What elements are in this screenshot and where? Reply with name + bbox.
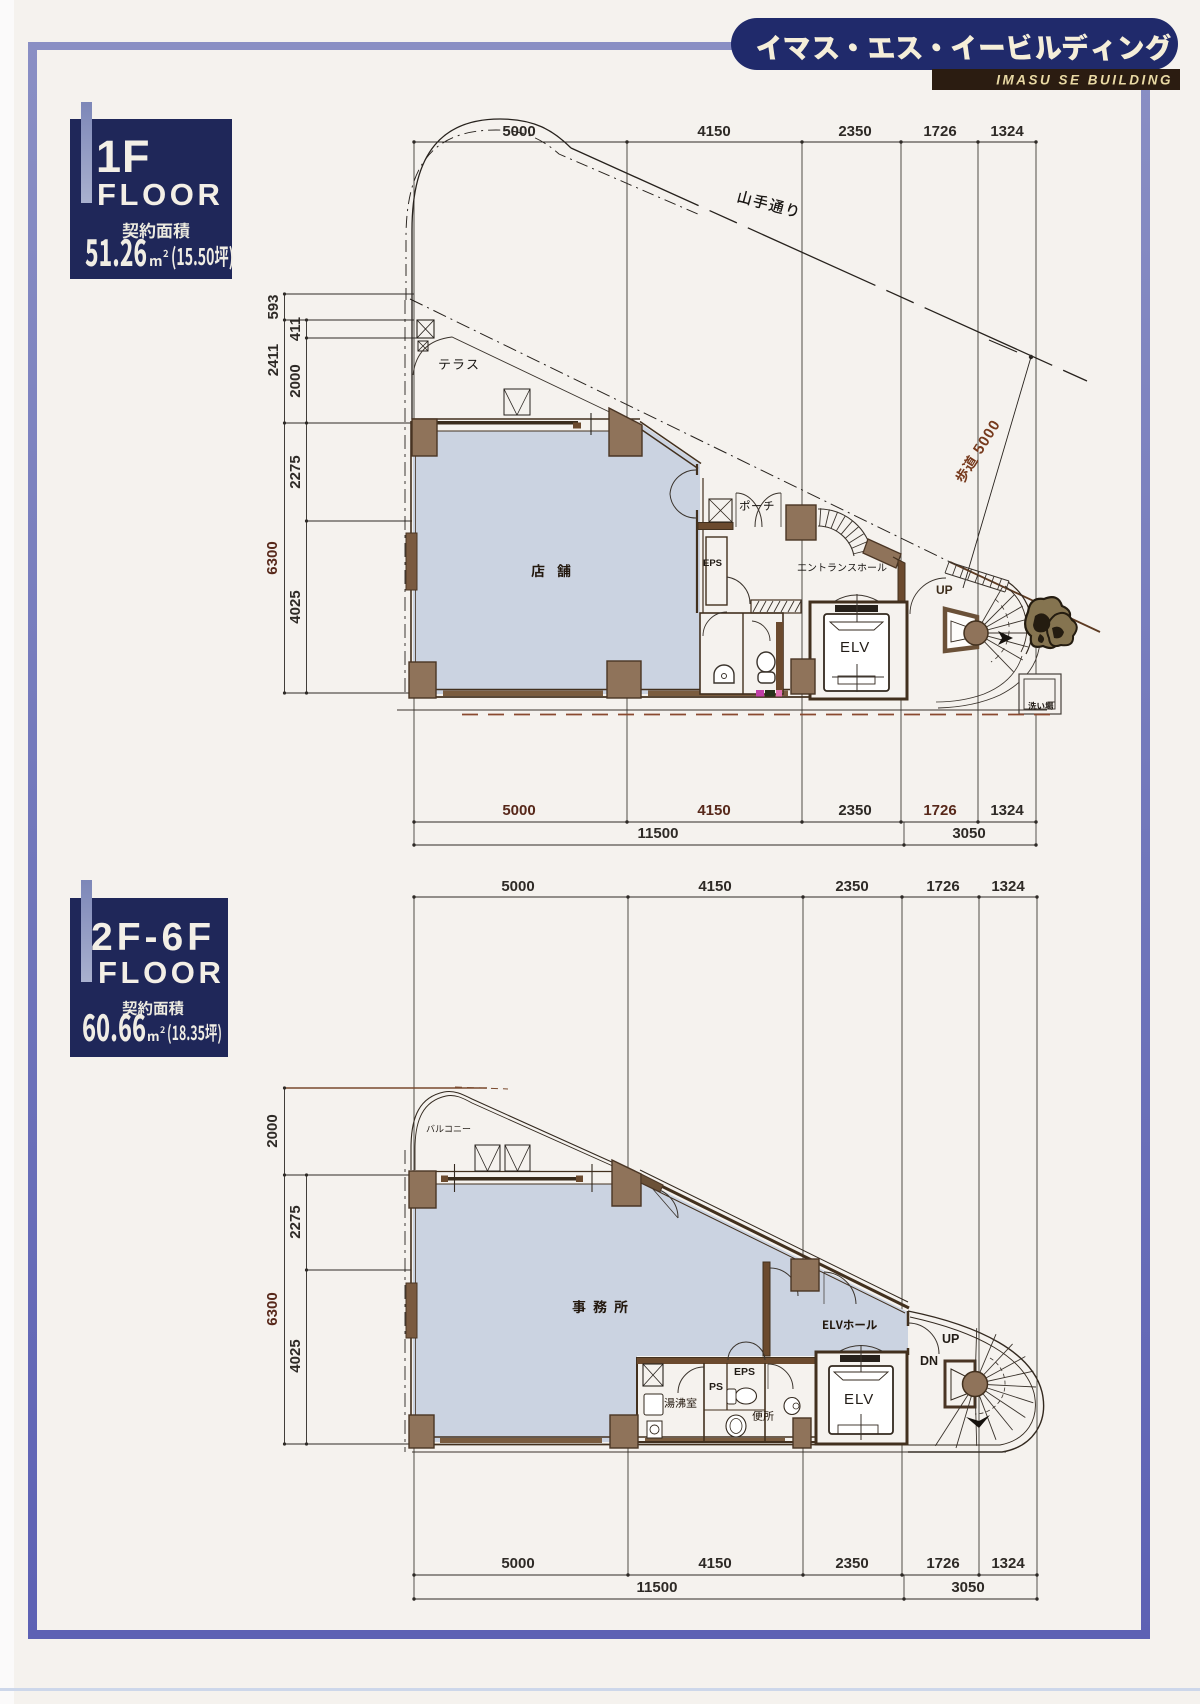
svg-text:1726: 1726	[923, 802, 956, 819]
svg-text:6300: 6300	[264, 1292, 281, 1325]
svg-text:5000: 5000	[501, 878, 534, 895]
svg-text:2350: 2350	[835, 878, 868, 895]
svg-text:4150: 4150	[697, 123, 730, 140]
svg-text:2000: 2000	[287, 364, 304, 397]
svg-text:IMASU SE BUILDING: IMASU SE BUILDING	[996, 73, 1173, 88]
svg-text:1324: 1324	[991, 878, 1025, 895]
svg-text:11500: 11500	[637, 1579, 678, 1596]
svg-text:4150: 4150	[698, 1555, 731, 1572]
svg-text:DN: DN	[920, 1354, 938, 1368]
svg-text:2275: 2275	[287, 455, 304, 488]
svg-text:UP: UP	[942, 1332, 959, 1346]
svg-text:5000: 5000	[502, 123, 535, 140]
svg-text:1324: 1324	[991, 1555, 1025, 1572]
svg-text:411: 411	[287, 317, 304, 341]
svg-text:ELV: ELV	[840, 639, 870, 656]
svg-text:11500: 11500	[638, 825, 679, 842]
svg-text:3050: 3050	[951, 1579, 984, 1596]
svg-text:1324: 1324	[990, 123, 1024, 140]
svg-text:4025: 4025	[287, 1339, 304, 1372]
svg-text:593: 593	[265, 294, 282, 319]
svg-text:2411: 2411	[265, 344, 282, 377]
svg-text:4150: 4150	[698, 878, 731, 895]
svg-text:2350: 2350	[835, 1555, 868, 1572]
svg-text:1726: 1726	[926, 878, 959, 895]
svg-text:EPS: EPS	[703, 558, 722, 569]
svg-text:2275: 2275	[287, 1205, 304, 1238]
svg-text:ELV: ELV	[844, 1391, 874, 1408]
svg-text:2000: 2000	[264, 1114, 281, 1147]
svg-text:3050: 3050	[952, 825, 985, 842]
svg-text:5000: 5000	[502, 802, 535, 819]
svg-text:5000: 5000	[501, 1555, 534, 1572]
svg-text:1726: 1726	[926, 1555, 959, 1572]
svg-text:1F: 1F	[96, 131, 151, 182]
svg-text:4150: 4150	[697, 802, 730, 819]
svg-text:1324: 1324	[990, 802, 1024, 819]
svg-text:1726: 1726	[923, 123, 956, 140]
svg-text:EPS: EPS	[734, 1366, 755, 1378]
svg-text:2350: 2350	[838, 802, 871, 819]
svg-text:UP: UP	[936, 583, 953, 597]
svg-text:2F-6F: 2F-6F	[91, 916, 215, 959]
svg-text:6300: 6300	[264, 541, 281, 574]
svg-text:2350: 2350	[838, 123, 871, 140]
svg-text:4025: 4025	[287, 590, 304, 623]
svg-text:FLOOR: FLOOR	[98, 955, 225, 990]
svg-text:FLOOR: FLOOR	[97, 177, 224, 212]
svg-text:PS: PS	[709, 1381, 723, 1393]
